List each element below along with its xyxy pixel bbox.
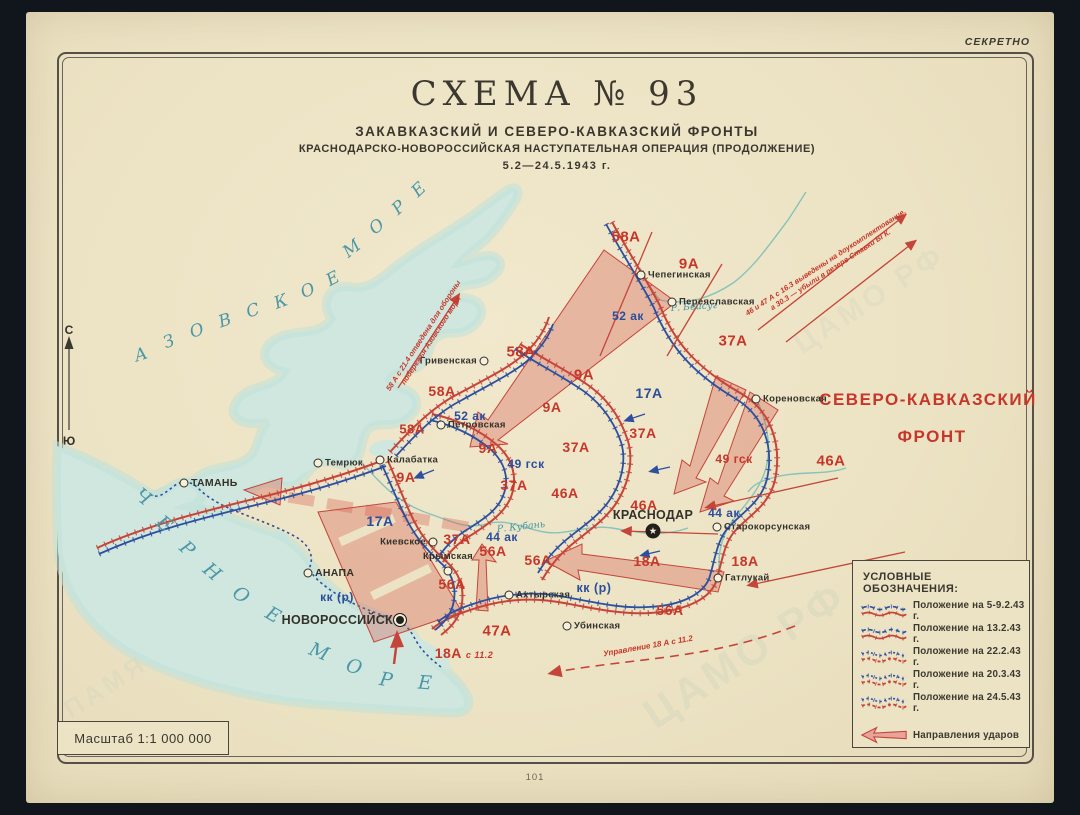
scale-box: Масштаб 1:1 000 000 bbox=[57, 721, 229, 755]
front-line-symbol bbox=[860, 695, 908, 711]
attack-arrow-icon bbox=[860, 725, 908, 745]
title-dates: 5.2—24.5.1943 г. bbox=[257, 160, 857, 172]
legend-item-label: Положение на 24.5.43 г. bbox=[913, 692, 1029, 714]
front-line-symbol bbox=[860, 626, 908, 642]
legend-item: Положение на 24.5.43 г. bbox=[853, 691, 1029, 714]
compass-north-label: С bbox=[65, 323, 74, 337]
title-fronts: ЗАКАВКАЗСКИЙ И СЕВЕРО-КАВКАЗСКИЙ ФРОНТЫ bbox=[257, 124, 857, 139]
legend-item: Положение на 5-9.2.43 г. bbox=[853, 599, 1029, 622]
map-scan-page: ЦАМО РФ ПАМЯТЬ НАРОДА ЦАМО РФ bbox=[0, 0, 1080, 815]
page-title: СХЕМА № 93 bbox=[257, 74, 857, 114]
page-number: 101 bbox=[505, 772, 565, 783]
legend-item: Положение на 13.2.43 г. bbox=[853, 622, 1029, 645]
front-line-symbol bbox=[860, 672, 908, 688]
title-operation: КРАСНОДАРСКО-НОВОРОССИЙСКАЯ НАСТУПАТЕЛЬН… bbox=[257, 143, 857, 155]
front-name-line1: СЕВЕРО-КАВКАЗСКИЙ bbox=[819, 390, 1037, 410]
title-block: СХЕМА № 93 ЗАКАВКАЗСКИЙ И СЕВЕРО-КАВКАЗС… bbox=[257, 74, 857, 172]
legend-item-label: Положение на 13.2.43 г. bbox=[913, 623, 1029, 645]
legend-box: УСЛОВНЫЕ ОБОЗНАЧЕНИЯ: Положение на 5-9.2… bbox=[852, 560, 1030, 748]
legend-item: Положение на 22.2.43 г. bbox=[853, 645, 1029, 668]
front-line-symbol bbox=[860, 649, 908, 665]
compass-south-label: Ю bbox=[63, 434, 75, 448]
legend-item-label: Положение на 20.3.43 г. bbox=[913, 669, 1029, 691]
secret-stamp: СЕКРЕТНО bbox=[930, 36, 1030, 48]
legend-title: УСЛОВНЫЕ ОБОЗНАЧЕНИЯ: bbox=[863, 571, 1023, 595]
legend-item-label: Положение на 5-9.2.43 г. bbox=[913, 600, 1029, 622]
legend-arrow-label: Направления ударов bbox=[913, 730, 1019, 741]
front-line-symbol bbox=[860, 603, 908, 619]
front-name-line2: ФРОНТ bbox=[897, 427, 966, 447]
legend-item-label: Положение на 22.2.43 г. bbox=[913, 646, 1029, 668]
scale-label: Масштаб 1:1 000 000 bbox=[74, 731, 211, 746]
legend-item: Положение на 20.3.43 г. bbox=[853, 668, 1029, 691]
legend-item-arrows: Направления ударов bbox=[853, 720, 1029, 750]
